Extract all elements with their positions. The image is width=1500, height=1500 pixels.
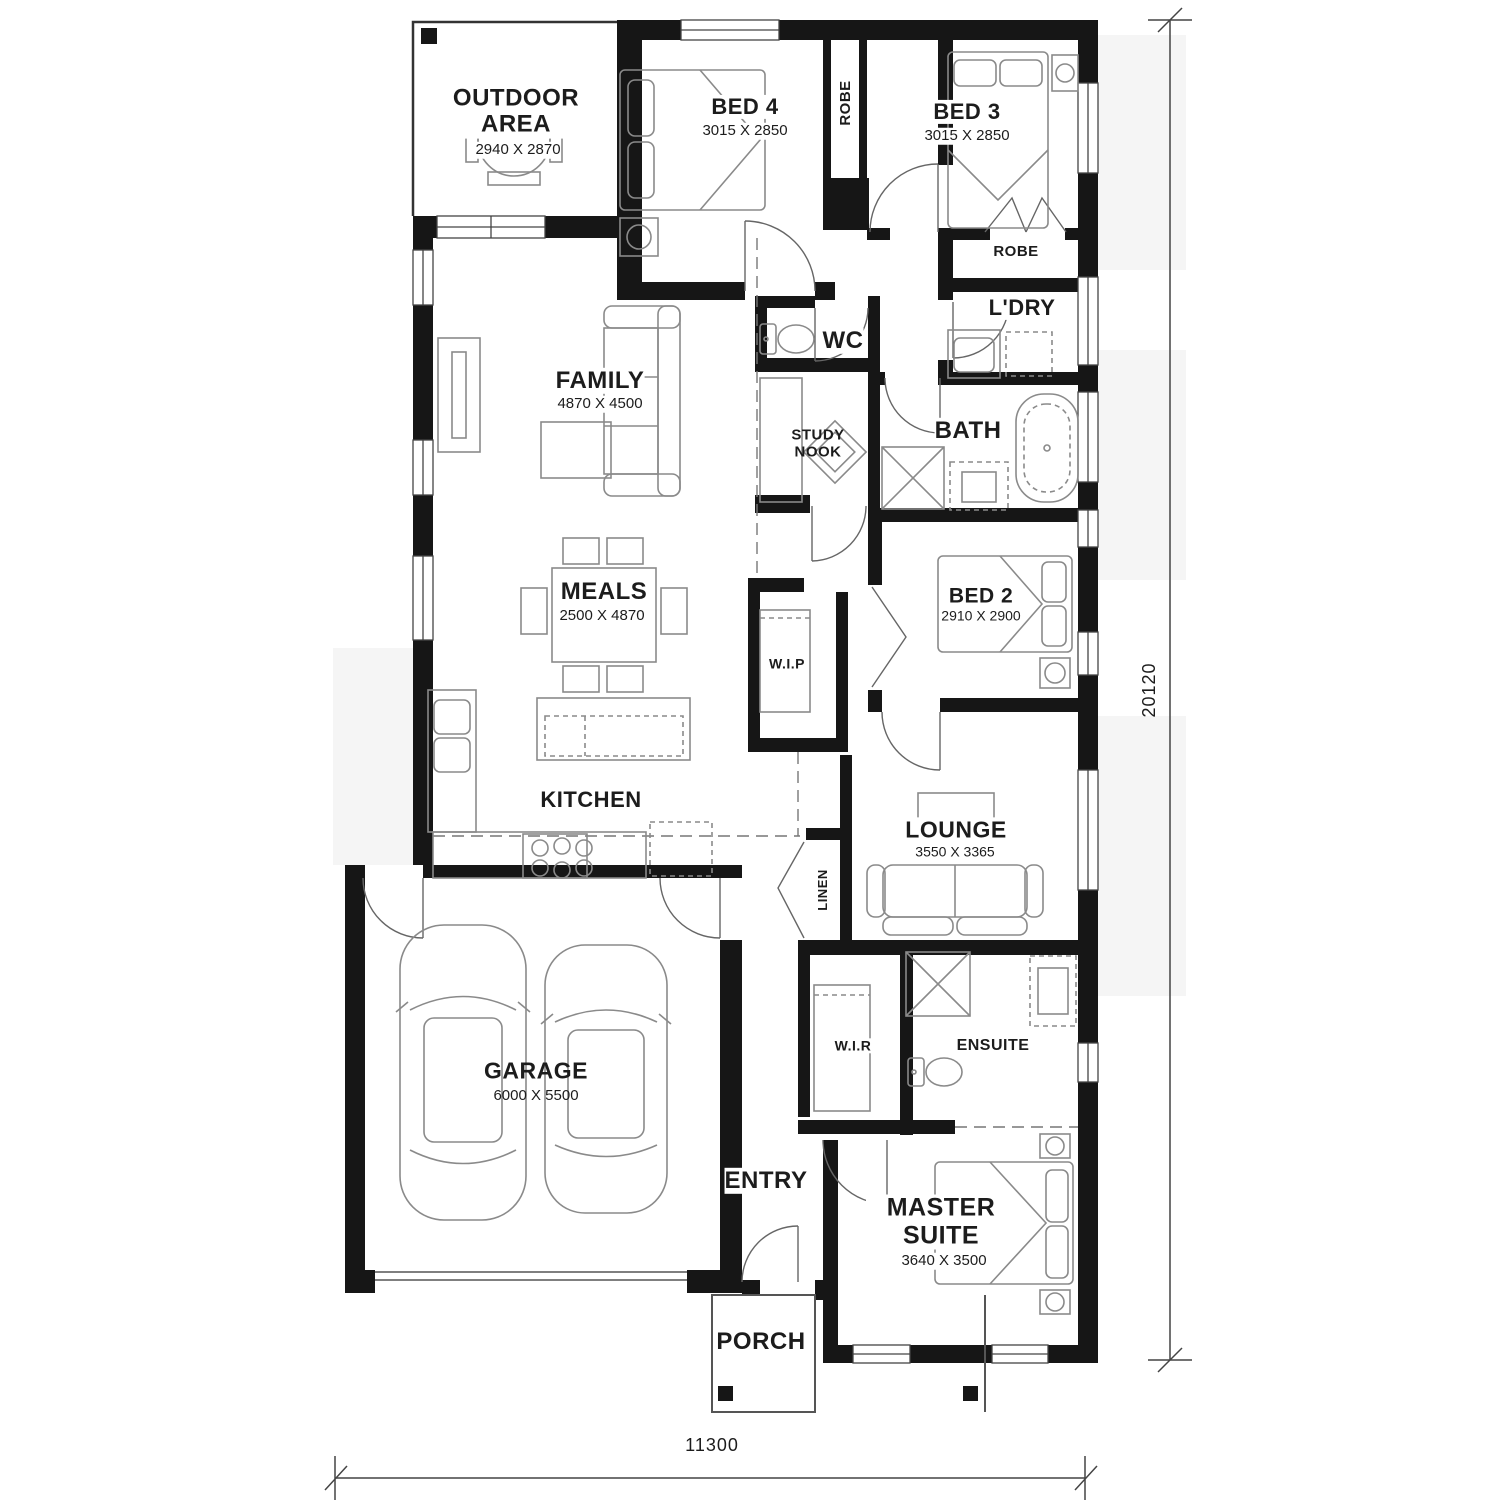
shower-ensuite-icon <box>906 952 970 1016</box>
room-label-laundry: L'DRY <box>989 296 1056 320</box>
garage-door <box>375 1272 687 1280</box>
floor-plan-drawing <box>0 0 1500 1500</box>
floor-plan: OUTDOOR AREA 2940 X 2870 BED 4 3015 X 28… <box>0 0 1500 1500</box>
room-label-linen: LINEN <box>816 869 830 911</box>
room-label-wc: WC <box>823 328 864 354</box>
room-label-porch: PORCH <box>716 1329 805 1355</box>
room-dims-bed2: 2910 X 2900 <box>941 608 1020 623</box>
room-label-outdoor: OUTDOOR AREA <box>428 86 604 139</box>
room-dims-lounge: 3550 X 3365 <box>915 844 994 859</box>
sink-icon <box>434 700 470 772</box>
bathtub-icon <box>1016 394 1078 502</box>
room-label-wir: W.I.R <box>835 1038 872 1053</box>
room-label-meals: MEALS <box>561 579 648 605</box>
room-label-robe4: ROBE <box>838 80 855 125</box>
room-label-family: FAMILY <box>556 368 645 394</box>
overall-width-dimension: 11300 <box>685 1436 739 1456</box>
room-dims-meals: 2500 X 4870 <box>559 608 644 625</box>
shower-bath-icon <box>882 447 944 509</box>
room-label-entry: ENTRY <box>725 1168 808 1194</box>
room-dims-garage: 6000 X 5500 <box>493 1088 578 1105</box>
room-label-wip: W.I.P <box>769 656 805 671</box>
room-dims-bed4: 3015 X 2850 <box>702 123 787 140</box>
room-dims-outdoor: 2940 X 2870 <box>475 142 560 159</box>
room-dims-family: 4870 X 4500 <box>557 396 642 413</box>
room-label-robe3: ROBE <box>993 244 1038 261</box>
toilet-ensuite-icon <box>908 1058 962 1086</box>
room-label-study: STUDY NOOK <box>775 428 861 461</box>
room-dims-bed3: 3015 X 2850 <box>924 128 1009 145</box>
toilet-wc-icon <box>760 324 814 354</box>
kitchen-island-icon <box>537 698 690 760</box>
overall-depth-dimension: 20120 <box>1140 662 1160 717</box>
room-label-ensuite: ENSUITE <box>957 1037 1030 1055</box>
room-label-bed4: BED 4 <box>711 95 778 119</box>
room-dims-master: 3640 X 3500 <box>901 1253 986 1270</box>
doors <box>363 164 1066 1282</box>
room-label-master: MASTER SUITE <box>866 1195 1016 1250</box>
room-label-bath: BATH <box>935 418 1002 444</box>
sofa-lounge-icon <box>867 865 1043 935</box>
vanity-bath-icon <box>950 462 1008 510</box>
tv-unit-icon <box>438 338 480 452</box>
laundry-tub-icon <box>948 330 1052 378</box>
room-label-garage: GARAGE <box>484 1058 588 1083</box>
room-label-kitchen: KITCHEN <box>540 788 641 812</box>
room-label-lounge: LOUNGE <box>905 817 1006 842</box>
vanity-ensuite-icon <box>1030 956 1076 1026</box>
room-label-bed2: BED 2 <box>949 584 1013 607</box>
room-label-bed3: BED 3 <box>933 100 1000 124</box>
